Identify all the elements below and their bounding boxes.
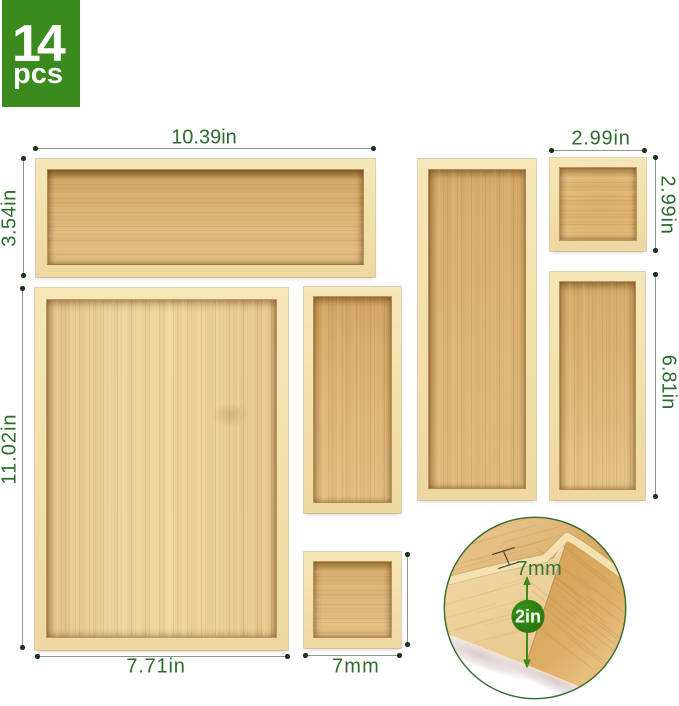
svg-text:7mm: 7mm	[517, 558, 563, 580]
svg-text:2in: 2in	[515, 606, 541, 626]
